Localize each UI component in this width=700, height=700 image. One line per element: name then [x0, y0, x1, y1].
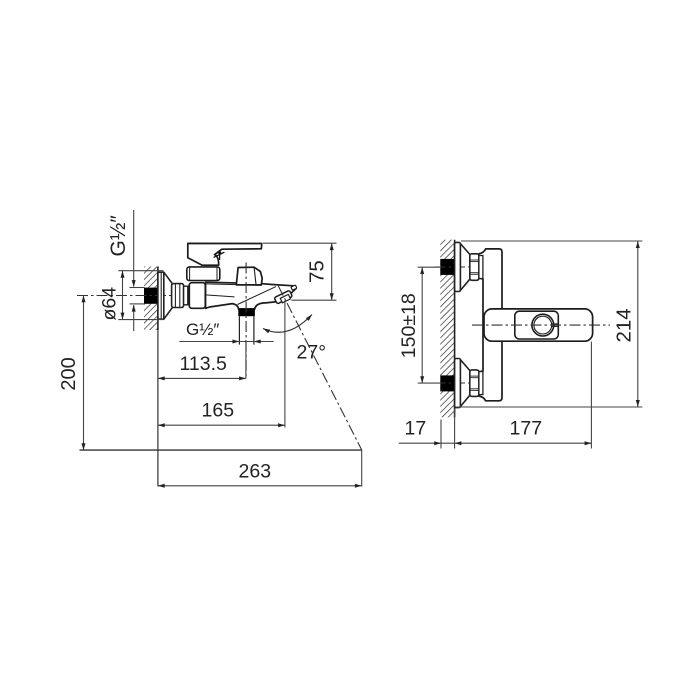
svg-text:165: 165	[202, 400, 235, 422]
svg-text:G½″: G½″	[107, 215, 130, 257]
svg-text:27°: 27°	[297, 342, 327, 364]
svg-text:200: 200	[58, 357, 80, 390]
svg-text:113.5: 113.5	[180, 353, 228, 375]
svg-text:177: 177	[510, 418, 543, 440]
svg-text:150±18: 150±18	[398, 293, 420, 358]
svg-text:263: 263	[239, 461, 272, 483]
svg-text:G½″: G½″	[186, 320, 219, 339]
svg-text:75: 75	[306, 260, 329, 283]
svg-text:214: 214	[613, 308, 636, 342]
svg-text:17: 17	[405, 418, 427, 440]
svg-text:ø64: ø64	[99, 287, 121, 321]
